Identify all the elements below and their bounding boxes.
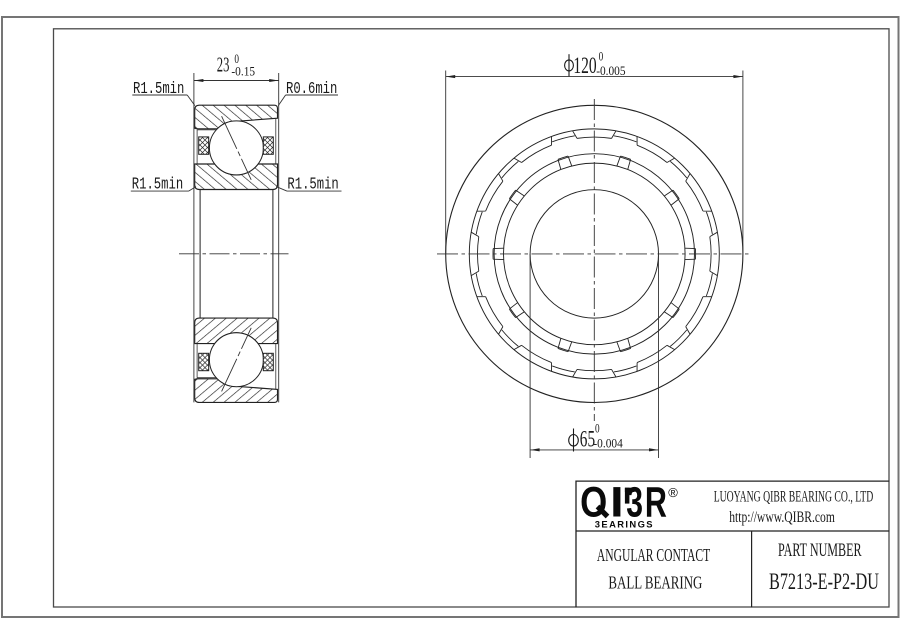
svg-text:LUOYANG QIBR BEARING CO., LTD: LUOYANG QIBR BEARING CO., LTD	[714, 487, 874, 505]
svg-text:-0.005: -0.005	[596, 63, 625, 78]
svg-text:®: ®	[668, 485, 678, 500]
svg-text:23: 23	[217, 52, 230, 76]
svg-text:PART NUMBER: PART NUMBER	[778, 540, 862, 560]
svg-text:R1.5min: R1.5min	[287, 176, 338, 194]
svg-text:B7213-E-P2-DU: B7213-E-P2-DU	[769, 569, 879, 594]
svg-text:-0.15: -0.15	[231, 64, 255, 79]
svg-text:BALL BEARING: BALL BEARING	[608, 574, 702, 594]
svg-text:0: 0	[595, 422, 600, 436]
svg-text:R0.6min: R0.6min	[286, 80, 337, 98]
svg-text:R1.5min: R1.5min	[132, 176, 183, 194]
svg-text:ANGULAR CONTACT: ANGULAR CONTACT	[597, 546, 711, 566]
svg-text:-0.004: -0.004	[593, 436, 622, 451]
svg-text:0: 0	[599, 50, 604, 64]
svg-text:3EARINGS: 3EARINGS	[595, 519, 654, 530]
svg-text:R1.5min: R1.5min	[133, 80, 184, 98]
svg-text:120: 120	[573, 54, 596, 79]
svg-text:http://www.QIBR.com: http://www.QIBR.com	[729, 509, 835, 526]
